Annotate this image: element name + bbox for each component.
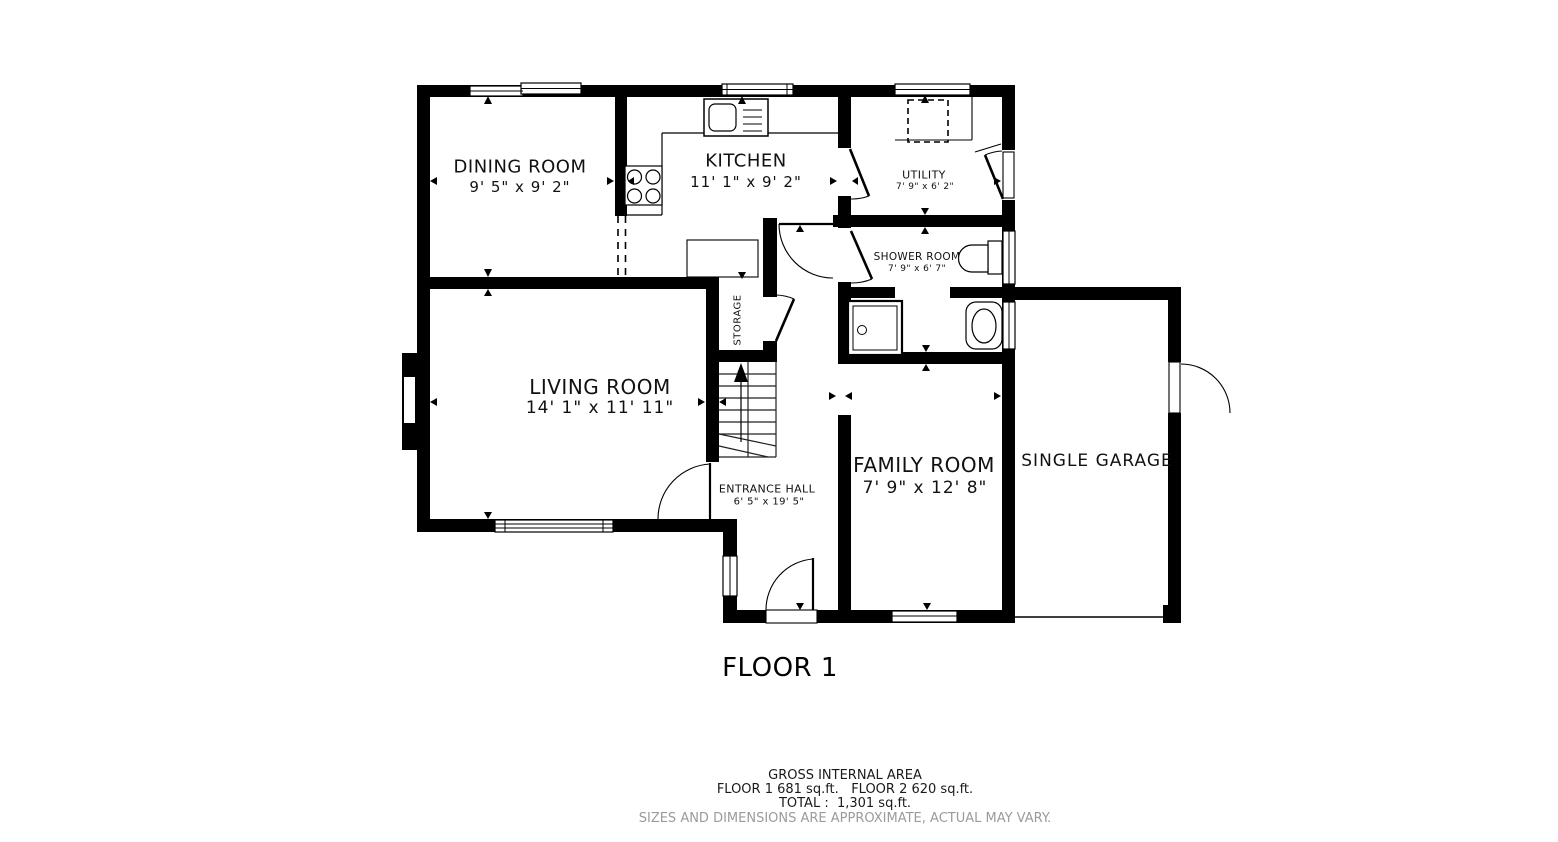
wall-segment [1168,413,1181,623]
door-leaf-storage [776,299,794,341]
wall-segment [1168,287,1181,362]
utility-corner-line [975,144,1001,152]
chimney-recess [404,377,415,423]
dimension-arrow [922,364,930,371]
room-label-dining-room: DINING ROOM [454,157,587,178]
door-arc [985,151,1002,155]
staircase [719,362,776,457]
floorplan-drawing [0,0,1558,842]
room-label-entrance-hall: ENTRANCE HALL [719,483,815,496]
kitchen-cupboard [687,240,758,277]
dashed-divider [618,216,626,277]
dimension-arrow [484,96,492,104]
wall-segment [838,97,851,148]
room-label-family-room: FAMILY ROOM [853,453,995,477]
toilet [959,241,1003,274]
room-dims-utility: 7' 9" x 6' 2" [896,182,954,192]
dimension-arrow [484,512,492,519]
dimension-arrow [796,225,804,232]
floor-title: FLOOR 1 [722,653,838,683]
dimension-arrow [607,177,614,185]
floorplan-page: DINING ROOM 9' 5" x 9' 2" KITCHEN 11' 1"… [0,0,1558,842]
door-arc [658,464,710,519]
dimension-arrow [698,398,705,406]
dimension-arrow [830,177,837,185]
garage-side-door-frame [1169,362,1180,413]
door-arc [779,224,833,278]
wall-segment [417,85,430,531]
dimension-arrow [430,398,437,406]
wall-segment [838,287,895,298]
wall-segment [1002,287,1181,300]
room-dims-shower-room: 7' 9" x 6' 7" [888,264,946,274]
front-door-threshold [766,610,817,623]
door-arc [1181,364,1230,413]
gross-internal-area-heading: GROSS INTERNAL AREA [639,770,1052,783]
wall-segment [706,277,719,462]
room-dims-entrance-hall: 6' 5" x 19' 5" [734,497,805,508]
dimension-arrow [796,603,804,610]
dimension-arrow [921,208,929,215]
wall-segment [833,215,1015,227]
door-leaf-kitchen-to-utility [850,149,869,196]
dimension-arrow [923,603,931,610]
dimension-arrow [829,392,836,400]
dimension-arrow [921,227,929,234]
dimension-arrow [719,398,726,406]
door-arc [851,196,869,199]
dimension-arrow [852,177,858,185]
window [495,520,613,532]
kitchen-sink [704,99,768,136]
room-label-kitchen: KITCHEN [705,151,787,172]
dimension-arrow [430,177,437,185]
room-label-utility: UTILITY [902,169,946,182]
room-label-living-room: LIVING ROOM [529,375,671,399]
dimension-arrow [922,345,930,352]
room-dims-kitchen: 11' 1" x 9' 2" [690,173,802,191]
back-door-frame [1003,152,1014,198]
wall-segment [1163,605,1181,623]
total-area-line: TOTAL : 1,301 sq.ft. [639,798,1052,811]
room-dims-living-room: 14' 1" x 11' 11" [526,398,674,418]
room-dims-dining-room: 9' 5" x 9' 2" [469,178,570,196]
wall-segment [763,218,777,297]
stairs-up-arrow [734,363,748,382]
shower-tray [848,301,902,355]
room-dims-family-room: 7' 9" x 12' 8" [863,478,988,498]
dimension-arrow [994,392,1001,400]
floor-areas-line: FLOOR 1 681 sq.ft. FLOOR 2 620 sq.ft. [639,784,1052,797]
area-summary: GROSS INTERNAL AREA FLOOR 1 681 sq.ft. F… [639,770,1052,826]
disclaimer-note: SIZES AND DIMENSIONS ARE APPROXIMATE, AC… [639,813,1052,826]
room-label-storage: STORAGE [733,294,744,345]
room-label-single-garage: SINGLE GARAGE [1021,451,1172,471]
dimension-arrow [484,269,492,277]
kitchen-hob [625,166,662,205]
utility-appliance-space [908,100,948,142]
door-arc [776,295,794,299]
wall-segment [417,277,719,289]
wall-segment [1002,85,1015,150]
dimension-arrow [484,289,492,296]
wash-basin [966,302,1002,349]
wall-segment [838,415,851,612]
wall-segment [706,350,777,362]
door-arc [766,559,813,610]
dimension-arrow [845,392,852,400]
door-leaf-shower-room [851,231,872,279]
door-arc [851,279,872,283]
room-label-shower-room: SHOWER ROOM [874,251,961,263]
